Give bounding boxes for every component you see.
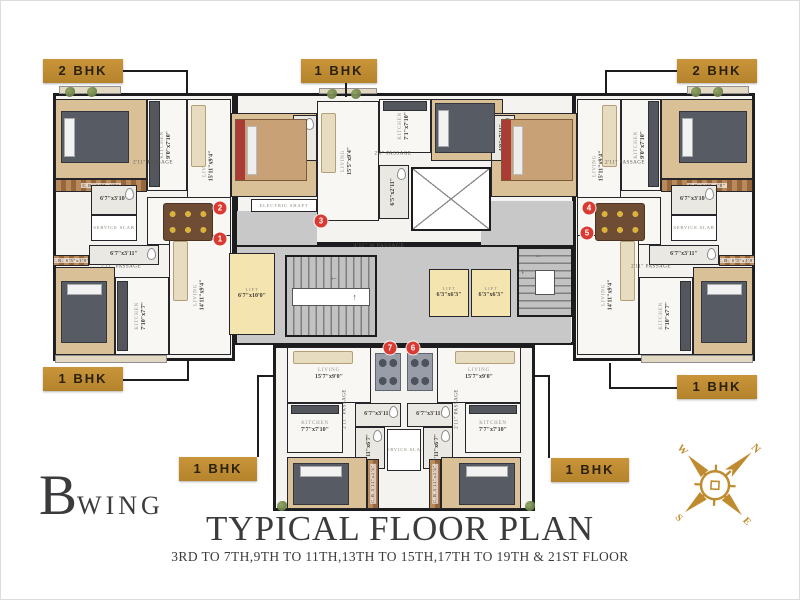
room-dimensions: 6'3"x6'3": [479, 292, 504, 300]
unit-number-badge: 7: [384, 342, 397, 355]
tableg-icon: [375, 353, 401, 391]
room-dimensions: 14'11"x9'4": [607, 280, 615, 311]
room-toilet: 6'7"x3'11": [89, 245, 159, 265]
room-toilet: 6'5"x2'11": [379, 165, 409, 219]
plan-annotation: 2'0" PASSAGE: [375, 152, 412, 157]
room-dimensions: 7'10"x7'7": [665, 302, 673, 330]
room-dimensions: 3'11"x6'7": [366, 434, 374, 462]
room-name: C.B. 6'5"x1'8": [719, 258, 755, 264]
bhk-tag: 1 BHK: [301, 59, 377, 83]
tag-connector-line: [605, 70, 677, 72]
bedred-icon: [501, 119, 573, 181]
counterh-icon: [383, 101, 427, 111]
sofa-icon: [191, 105, 206, 167]
svg-text:E: E: [740, 515, 753, 528]
room-name: C.B 5'11"x1'6": [432, 464, 438, 504]
room-dimensions: 9'0"x7'10": [640, 131, 648, 159]
counter-icon: [680, 281, 691, 351]
room-toilet: [55, 355, 167, 363]
tag-connector-line: [535, 375, 548, 377]
room-dimensions: 6'3"x6'3": [437, 292, 462, 300]
tag-connector-line: [187, 361, 189, 379]
room-name: SERVICE SLAB: [387, 447, 421, 453]
room-dimensions: 7'10"x7'7": [141, 302, 149, 330]
room-c.b: C.B 5'11"x1'6": [429, 459, 441, 509]
room-c.b: C.B 5'11"x1'6": [367, 459, 379, 509]
passage-area: [481, 201, 573, 245]
tag-connector-line: [257, 375, 273, 377]
bhk-tag: 1 BHK: [179, 457, 257, 481]
room-name: SERVICE SLAB: [673, 225, 714, 231]
room-toilet: 6'7"x3'10": [671, 185, 717, 215]
plan-annotation: 2'11" PASSAGE: [101, 265, 141, 270]
room-service: SERVICE SLAB: [671, 215, 717, 241]
bedv-icon: [293, 463, 349, 505]
floor-plan-page: BEDROOM10'0"x9'4"C.B. 6'5"x1'8"KITCHEN9'…: [0, 0, 800, 600]
plan-annotation: 2'11" PASSAGE: [631, 265, 671, 270]
room-toilet: 6'7"x3'11": [649, 245, 719, 265]
unit-number-badge: 4: [583, 202, 596, 215]
room-dimensions: 7'1"x7'10": [404, 112, 412, 140]
tag-connector-line: [609, 363, 611, 387]
bhk-tag: 2 BHK: [677, 59, 757, 83]
room-electric: ELECTRIC SHAFT: [251, 199, 317, 212]
plan-annotation: ↑: [353, 292, 358, 302]
room-dimensions: 15'7"x9'0": [465, 374, 493, 382]
counterh-icon: [469, 405, 517, 414]
counter-icon: [117, 281, 128, 351]
tag-connector-line: [605, 70, 607, 95]
room-lift: LIFT6'7"x10'0": [229, 253, 275, 335]
bhk-tag: 1 BHK: [677, 375, 757, 399]
plan-annotation: 2'11" PASSAGE: [605, 161, 645, 166]
passage-area: [237, 211, 317, 245]
room-name: LIVING: [601, 280, 607, 311]
tag-connector-line: [257, 375, 259, 457]
room-toilet: 6'7"x3'11": [407, 403, 453, 427]
room-dimensions: 15'11"x9'4": [208, 151, 216, 182]
room-toilet: [641, 355, 753, 363]
bhk-tag: 1 BHK: [551, 458, 629, 482]
table6-icon: [595, 203, 645, 241]
room-dimensions: 15'7"x9'0": [315, 374, 343, 382]
svg-text:S: S: [673, 512, 685, 524]
plan-annotation: ←: [535, 251, 544, 260]
room-dimensions: 6'7"x3'10": [680, 196, 708, 204]
unit-number-badge: 3: [315, 215, 328, 228]
room-dimensions: 6'7"x3'11": [110, 251, 138, 259]
bedred-icon: [235, 119, 307, 181]
sofah-icon: [455, 351, 515, 364]
room-dimensions: 6'7"x3'11": [670, 251, 698, 259]
svg-text:N: N: [748, 442, 762, 456]
room-dimensions: 6'7"x3'11": [416, 411, 444, 419]
room-dimensions: 6'5"x2'11": [390, 178, 398, 206]
svg-text:W: W: [675, 443, 690, 458]
bhk-tag: 1 BHK: [43, 367, 123, 391]
room-dimensions: 9'0"x7'10": [166, 131, 174, 159]
room-dimensions: 6'7"x3'11": [364, 411, 392, 419]
unit-number-badge: 2: [214, 202, 227, 215]
room-lift: LIFT6'3"x6'3": [471, 269, 511, 317]
tag-connector-line: [186, 70, 188, 95]
room-c.b.: C.B. 6'5"x1'8": [719, 255, 755, 266]
sofah-icon: [293, 351, 353, 364]
tag-connector-line: [609, 387, 677, 389]
room-name: C.B. 6'5"x1'8": [53, 258, 89, 264]
plan-annotation: 2'11" PASSAGE: [455, 389, 460, 429]
room-service: SERVICE SLAB: [387, 429, 421, 471]
counter-icon: [149, 101, 160, 187]
room-lift: LIFT6'3"x6'3": [429, 269, 469, 317]
page-subtitle: 3RD TO 7TH,9TH TO 11TH,13TH TO 15TH,17TH…: [1, 549, 799, 565]
bed-icon: [435, 103, 495, 153]
unit-number-badge: 1: [214, 233, 227, 246]
sofa-icon: [321, 113, 336, 173]
room-dimensions: 14'11"x9'4": [199, 280, 207, 311]
room-dimensions: 6'7"x10'0": [238, 293, 266, 301]
bedv-icon: [459, 463, 515, 505]
unit-number-badge: 6: [407, 342, 420, 355]
room-dimensions: 6'7"x3'10": [100, 196, 128, 204]
room-name: SERVICE SLAB: [93, 225, 134, 231]
room-dimensions: 15'5"x9'4": [347, 147, 355, 175]
compass-icon: N E S W: [659, 427, 771, 539]
room-service: SERVICE SLAB: [91, 215, 137, 241]
room-c.b.: C.B. 6'5"x1'8": [53, 255, 89, 266]
stairh-icon: [517, 247, 573, 317]
counter-icon: [648, 101, 659, 187]
room-dimensions: 7'7"x7'10": [479, 427, 507, 435]
bed-icon: [679, 111, 747, 163]
bhk-tag: 2 BHK: [43, 59, 123, 83]
duct-icon: [411, 167, 491, 231]
tag-connector-line: [345, 83, 347, 97]
room-name: C.B 5'11"x1'6": [370, 464, 376, 504]
tag-connector-line: [123, 379, 189, 381]
room-dimensions: 7'7"x7'10": [301, 427, 329, 435]
room-name: LIVING: [592, 151, 598, 182]
plan-annotation: 2'11" PASSAGE: [343, 389, 348, 429]
plan-annotation: ↓: [521, 267, 526, 276]
sofa-icon: [602, 105, 617, 167]
counterh-icon: [291, 405, 339, 414]
tableg-icon: [407, 353, 433, 391]
room-name: ELECTRIC SHAFT: [260, 203, 309, 209]
stairv-icon: [285, 255, 377, 337]
plan-annotation: 4'11" W PASSAGE: [354, 243, 404, 249]
table6-icon: [163, 203, 213, 241]
tag-connector-line: [548, 375, 550, 458]
bed-icon: [61, 111, 129, 163]
sofa-icon: [620, 241, 635, 301]
plan-annotation: 2'11" PASSAGE: [133, 161, 173, 166]
tag-connector-line: [123, 70, 187, 72]
unit-number-badge: 5: [581, 227, 594, 240]
plan-annotation: ←: [329, 272, 339, 282]
sofa-icon: [173, 241, 188, 301]
room-toilet: 6'7"x3'11": [355, 403, 401, 427]
room-name: LIVING: [193, 280, 199, 311]
bedv-icon: [701, 281, 747, 343]
bedv-icon: [61, 281, 107, 343]
room-toilet: 6'7"x3'10": [91, 185, 137, 215]
